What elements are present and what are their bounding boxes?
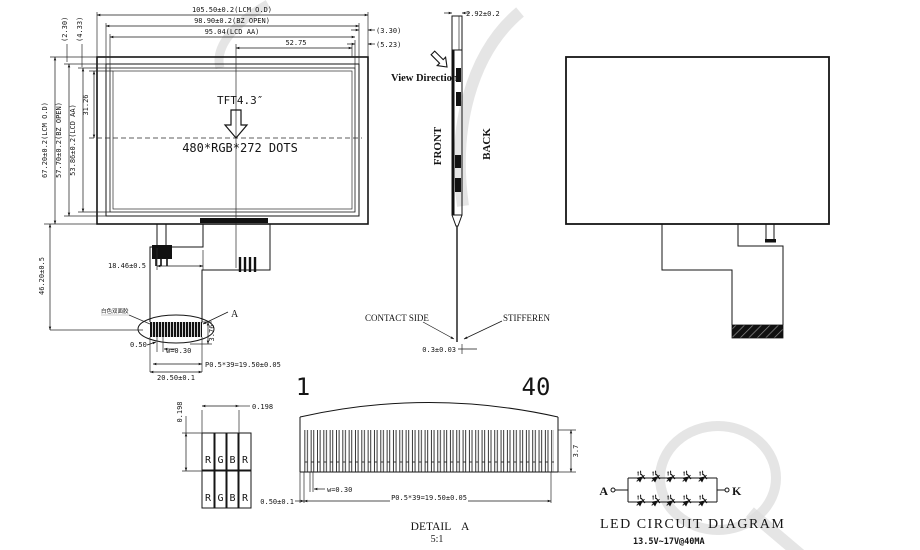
dim-lcm-width: 105.50±0.2(LCM O.D): [192, 6, 272, 14]
dim-bezel-margin-right: (3.30): [376, 27, 401, 35]
led-row-top: [632, 470, 708, 484]
side-profile-taper: [452, 215, 462, 226]
front-label: FRONT: [432, 126, 444, 165]
dim-da-pitch: P0.5*39=19.50±0.05: [391, 494, 467, 502]
lcd-aa-outline: [110, 68, 355, 212]
dim-thickness: 2.92±0.2: [466, 10, 500, 18]
active-area-outline: [113, 71, 352, 209]
back-contact-bar: [732, 325, 783, 338]
watermark-swoosh-middle: [460, 12, 520, 206]
lcd-module-drawing: 105.50±0.2(LCM O.D) 98.90±0.2(BZ OPEN) 9…: [0, 0, 920, 550]
view-direction-label: View Direction: [391, 73, 458, 84]
dim-pixel-horizontal: 0.198: [252, 403, 273, 411]
drawing-canvas: 105.50±0.2(LCM O.D) 98.90±0.2(BZ OPEN) 9…: [0, 0, 920, 550]
subpixel-r3: R: [205, 493, 212, 504]
dim-bezel-height: 57.70±0.2(BZ OPEN): [55, 102, 63, 178]
led-circuit-title: LED CIRCUIT DIAGRAM: [600, 517, 785, 532]
dim-top-margin-bezel: (2.30): [61, 17, 69, 42]
driver-ic-bar: [200, 218, 268, 223]
subpixel-b1: B: [229, 455, 235, 466]
fpc-component: [152, 245, 172, 259]
dim-finger-offset: 0.50: [130, 341, 147, 349]
back-label: BACK: [481, 128, 493, 160]
dim-finger-width: w=0.30: [166, 347, 191, 355]
detail-a-title: DETAIL A: [411, 521, 470, 533]
stiffener-label: STIFFEREN: [503, 313, 551, 323]
dim-finger-offset-leader: [147, 342, 156, 345]
pin-1-label: 1: [296, 373, 310, 401]
dim-half-height: 31.26: [82, 94, 90, 115]
back-outline: [566, 57, 829, 224]
dim-fpc-thickness: 0.3±0.03: [422, 346, 456, 354]
dim-pixel-vertical: 0.198: [176, 401, 184, 422]
led-circuit: A K LED CIRCUIT DIAGRAM 13.5V~17V@40MA: [599, 470, 785, 547]
dim-lcm-height: 67.20±0.2(LCM O.D): [41, 102, 49, 178]
dim-aa-width: 95.04(LCD AA): [205, 28, 260, 36]
resolution-label: 480*RGB*272 DOTS: [182, 141, 298, 155]
dim-da-width: w=0.30: [327, 486, 352, 494]
detail-a-arc: [300, 403, 558, 418]
back-fpc-outline: [662, 224, 783, 325]
subpixel-r4: R: [242, 493, 249, 504]
gold-fingers: [150, 322, 202, 337]
dim-finger-total: 20.50±0.1: [157, 374, 195, 382]
dim-bezel-width: 98.90±0.2(BZ OPEN): [194, 17, 270, 25]
anode-terminal: [611, 488, 615, 492]
stiffener-leader: [464, 321, 502, 339]
subpixel-g1: G: [217, 455, 223, 466]
view-direction-arrow-icon: [431, 51, 447, 67]
dim-fpc-length: 46.20±0.5: [38, 257, 46, 295]
dim-aa-margin-right: (5.23): [376, 41, 401, 49]
side-view: 2.92±0.2 View Direction FRONT BACK CONTA…: [365, 10, 551, 354]
pin-40-label: 40: [522, 373, 551, 401]
back-fpc-connector-marks: [765, 239, 776, 243]
screen-type-label: TFT4.3″: [217, 94, 263, 107]
detail-a-view: 1 40 0.50±0.1 w=0.30 P0.5*39=19.50±0.05 …: [260, 373, 580, 545]
connector-note: 白色双面胶: [101, 307, 129, 315]
subpixel-g2: G: [217, 493, 223, 504]
anode-label: A: [599, 484, 608, 498]
detail-a-scale: 5:1: [431, 534, 444, 545]
led-circuit-spec: 13.5V~17V@40MA: [633, 537, 705, 547]
contact-side-label: CONTACT SIDE: [365, 313, 429, 323]
dim-aa-height: 53.86±0.2(LCD AA): [69, 104, 77, 176]
bezel-open-outline: [106, 64, 359, 216]
back-view: [566, 57, 829, 338]
contact-side-leader: [423, 322, 454, 339]
pixel-detail: R G B R R G B R 0.198 0.198: [176, 401, 273, 508]
dim-fpc-offset: 18.46±0.5: [108, 262, 146, 270]
dim-half-width: 52.75: [285, 39, 306, 47]
subpixel-r1: R: [205, 455, 212, 466]
cathode-terminal: [725, 488, 729, 492]
dim-top-margin-aa: (4.33): [76, 17, 84, 42]
fpc-outline: [150, 224, 270, 322]
subpixel-r2: R: [242, 455, 249, 466]
fpc-component-pins: [156, 259, 167, 266]
detail-a-pins: [303, 430, 554, 472]
dim-da-offset: 0.50±0.1: [260, 498, 294, 506]
dim-finger-height: 3.76: [208, 325, 216, 342]
detail-a-ref-label: A: [231, 309, 239, 320]
subpixel-b2: B: [229, 493, 235, 504]
dim-finger-pitch: P0.5*39=19.50±0.05: [205, 361, 281, 369]
dim-da-height: 3.7: [572, 445, 580, 458]
cathode-label: K: [732, 484, 742, 498]
